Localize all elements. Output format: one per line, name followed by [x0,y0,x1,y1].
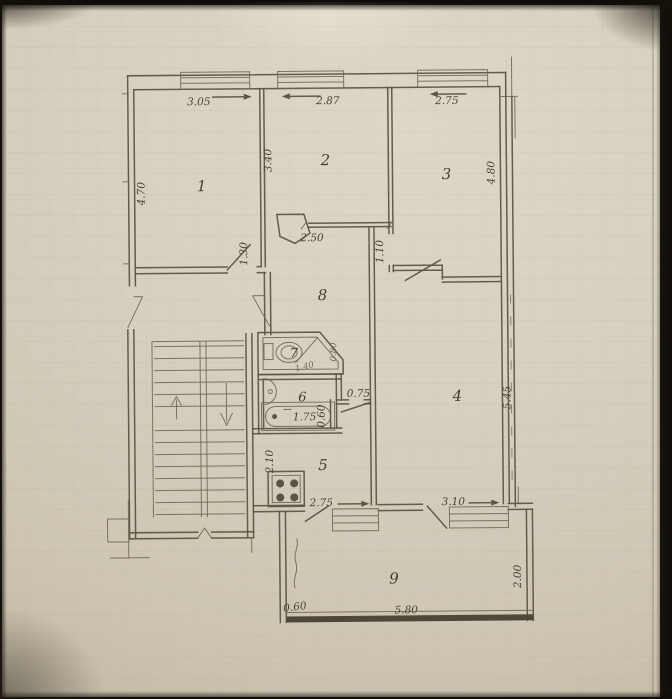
arrow-right-icon [213,94,252,100]
paper-crease [294,538,298,588]
paper-edge-line [652,0,654,699]
dim-balcony-depth: 2.00 [512,564,524,589]
dim-room4-depth: 5.45 [501,385,513,409]
dim-bathtub: 1.75 [293,411,317,423]
room-label-9: 9 [389,569,399,587]
dim-room1-width: 3.05 [187,96,211,108]
dim-bath-recess: 0.60 [315,404,327,428]
arrow-right-icon [338,501,369,507]
dim-room2-width: 2.87 [315,95,340,107]
door-swing [427,506,446,528]
dim-kitchen-window-wall: 2.75 [309,497,334,509]
dim-room1-door: 1.30 [238,242,250,266]
room-label-1: 1 [197,177,207,195]
interior-walls [134,86,533,512]
window-symbol [449,507,508,529]
dimension-arrows [213,91,500,508]
dim-kitchen-side: 2.10 [264,450,276,475]
dim-room3-depth: 4.80 [485,161,497,186]
stairwell [106,296,272,559]
room-label-3: 3 [442,165,452,183]
room-label-8: 8 [318,286,328,304]
dim-toilet-length: 1.40 [294,360,315,375]
window-symbol [332,509,378,531]
photo-shadow-left [0,0,7,699]
dim-hall-width: 2.50 [299,232,324,244]
stove-icon [268,471,304,506]
wall-break-mark [198,528,212,538]
dim-room3-width: 2.75 [434,95,459,107]
room-label-2: 2 [319,151,330,169]
sink-icon [263,379,276,405]
dim-room2-depth: 3.40 [262,149,274,173]
stairs-up-arrow-icon [171,396,181,419]
photo-of-floor-plan: 3.05 2.87 2.75 4.70 3.40 4.80 2.50 1.30 … [0,0,672,699]
dimension-labels: 3.05 2.87 2.75 4.70 3.40 4.80 2.50 1.30 … [135,93,525,618]
stairs-down-arrow-icon [220,383,232,425]
stair-treads [152,341,246,518]
arrow-left-icon [282,93,320,99]
exterior-walls [121,56,521,509]
vestibule-walls [128,296,270,328]
dimension-ticks [301,220,393,229]
dim-toilet-width: 0.80 [329,342,340,362]
photo-shadow-top [0,0,672,11]
balcony-rail [286,617,533,619]
dim-room4-window-wall: 3.10 [442,496,466,508]
room-label-7: 7 [290,346,299,361]
room-label-4: 4 [452,387,463,405]
room-label-5: 5 [318,456,328,474]
photo-shadow-right [656,0,672,699]
room-label-6: 6 [298,390,306,405]
floor-plan-drawing: 3.05 2.87 2.75 4.70 3.40 4.80 2.50 1.30 … [0,0,672,699]
photo-shadow-bottom [0,691,672,699]
dim-room3-door: 1.10 [374,240,386,264]
dim-balcony-length: 5.80 [395,604,419,616]
dim-room1-depth: 4.70 [136,182,148,207]
dim-corridor-door: 0.75 [347,388,371,400]
arrow-right-icon [469,500,499,506]
floor-plan: 3.05 2.87 2.75 4.70 3.40 4.80 2.50 1.30 … [0,0,672,699]
